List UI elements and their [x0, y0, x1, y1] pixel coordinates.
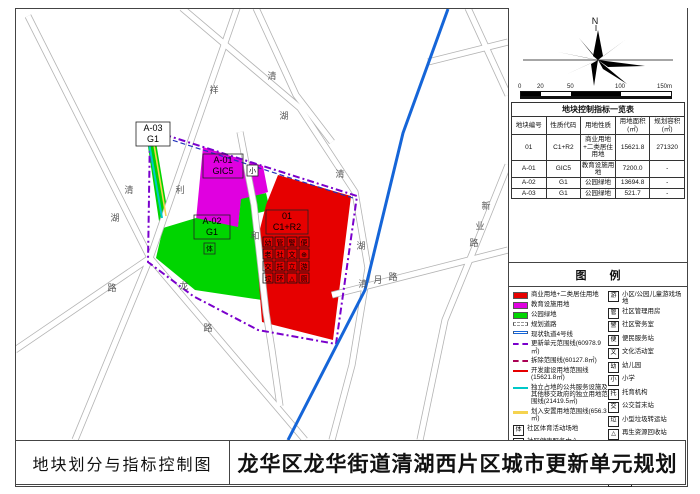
recycling-station-icon: △ [608, 429, 619, 440]
road-label: 清 [358, 278, 367, 289]
cell: 01 [512, 135, 547, 160]
development-line-symbol [513, 370, 528, 372]
road-label: 路 [203, 322, 212, 333]
cell: 521.7 [615, 188, 650, 198]
legend-item: △再生资源回收站 [608, 429, 685, 440]
scale-tick: 20 [537, 84, 544, 90]
indicator-table: 地块控制指标一览表 地块编号 性质代码 用地性质 用地面积(㎡) 规划容积(㎡)… [511, 102, 685, 199]
resettlement-line-symbol [513, 411, 528, 414]
road-label: 路 [469, 237, 478, 248]
col-capacity: 规划容积(㎡) [650, 117, 685, 135]
info-panel: N 0 20 50 100 150m 地块控制指标一览表 [508, 8, 687, 440]
col-code: 性质代码 [546, 117, 581, 135]
legend-item: 教育设施用地 [513, 301, 608, 309]
cell: 公园绿地 [581, 188, 616, 198]
legend-item: 幼幼儿园 [608, 362, 685, 373]
independent-land-symbol [513, 387, 528, 389]
police-room-icon: 警 [289, 238, 296, 247]
plot-01-code: C1+R2 [273, 222, 301, 232]
scale-bar-strip [520, 91, 672, 99]
road-label: 湖 [279, 111, 288, 121]
legend-item: 公园绿地 [513, 311, 608, 319]
road-label: 清 [124, 184, 133, 195]
road-label: 新 [481, 200, 490, 211]
road-label: 利 [175, 184, 184, 195]
cell: GIC5 [546, 160, 581, 178]
scale-tick: 150m [657, 84, 672, 90]
legend-item: 现状轨道4号线 [513, 331, 608, 338]
kindergarten-icon: 幼 [265, 238, 272, 247]
metro-line-symbol [513, 331, 528, 334]
compass-rose-icon [558, 30, 645, 86]
plot-a03-id: A-03 [143, 123, 162, 133]
road-label: 业 [475, 221, 484, 231]
road-label: 湖 [110, 213, 119, 223]
cell: 13694.8 [615, 178, 650, 188]
road-label: 月 [373, 275, 382, 285]
col-land-use: 用地性质 [581, 117, 616, 135]
nursery-icon: 托 [277, 262, 284, 271]
cell: 15621.8 [615, 135, 650, 160]
legend-item: 划入安置用地范围线(656.3㎡) [513, 408, 608, 422]
garbage-transfer-icon: 垃 [608, 416, 619, 427]
convenience-station-icon: 便 [608, 335, 619, 346]
legend-title: 图 例 [509, 263, 687, 287]
legend-item: 更新单元范围线(60978.9㎡) [513, 340, 608, 354]
demolition-line-symbol [513, 360, 528, 362]
plot-a02-id: A-02 [202, 216, 221, 226]
park-swatch [513, 312, 528, 319]
plot-01-id: 01 [282, 211, 292, 221]
commercial-swatch [513, 292, 528, 299]
plot-a01-code: GIC5 [212, 166, 233, 176]
planned-road-symbol [513, 322, 528, 326]
road-label: 路 [388, 271, 397, 282]
scale-tick: 50 [567, 84, 574, 90]
cell: 商业用地+二类居住用地 [581, 135, 616, 160]
legend-item: 体社区体育活动场地 [513, 425, 608, 436]
col-area: 用地面积(㎡) [615, 117, 650, 135]
public-toilet-icon: 厕 [301, 275, 308, 283]
cell: A-03 [512, 188, 547, 198]
sports-ground-icon: 体 [513, 425, 524, 436]
table-row: 01C1+R2 商业用地+二类居住用地15621.8 271320 [512, 135, 685, 160]
legend-item: 商业用地+二类居住用地 [513, 291, 608, 299]
bus-terminus-icon: 交 [608, 402, 619, 413]
table-row: A-02G1 公园绿地13694.8 - [512, 178, 685, 188]
legend-item: 规划道路 [513, 321, 608, 328]
cell: - [650, 188, 685, 198]
misc-facility-icon: 立 [289, 262, 296, 271]
legend-item: 小小学 [608, 375, 685, 386]
sports-ground-icon: 体 [206, 244, 213, 253]
children-playground-icon: 游 [608, 291, 619, 302]
primary-school-icon: 小 [249, 166, 256, 175]
table-row: A-03G1 公园绿地521.7 - [512, 188, 685, 198]
convenience-station-icon: 便 [301, 238, 308, 247]
col-plot-id: 地块编号 [512, 117, 547, 135]
cell: - [650, 178, 685, 188]
cell: A-01 [512, 160, 547, 178]
scale-bar: 0 20 50 100 150m [517, 84, 679, 100]
table-header-row: 地块编号 性质代码 用地性质 用地面积(㎡) 规划容积(㎡) [512, 117, 685, 135]
nursery-icon: 托 [608, 389, 619, 400]
cell: 公园绿地 [581, 178, 616, 188]
plot-a01-id: A-01 [213, 155, 232, 165]
plot-a03-code: G1 [147, 134, 159, 144]
table-title: 地块控制指标一览表 [512, 103, 685, 117]
legend-item: 托托育机构 [608, 389, 685, 400]
cell: 7200.0 [615, 160, 650, 178]
table-row: A-01GIC5 教育设施用地7200.0 - [512, 160, 685, 178]
culture-room-icon: 文 [289, 250, 296, 259]
legend-item: 管社区管理用房 [608, 308, 685, 319]
cell: 271320 [650, 135, 685, 160]
legend-item: 交公交首末站 [608, 402, 685, 413]
legend-item: 游小区/公园儿童游戏场地 [608, 291, 685, 305]
title-bar: 地块划分与指标控制图 龙华区龙华街道清湖西片区城市更新单元规划 [15, 440, 686, 485]
plot-a02-code: G1 [206, 227, 218, 237]
cell: G1 [546, 178, 581, 188]
legend-item: 开发建设用地范围线(15621.8㎡) [513, 367, 608, 381]
legend-item: 拆除范围线(60127.8㎡) [513, 357, 608, 364]
drawing-name: 地块划分与指标控制图 [16, 441, 230, 484]
health-center-icon: ⊕ [301, 252, 307, 259]
north-arrow: N [513, 12, 683, 88]
legend-item: 文文化活动室 [608, 348, 685, 359]
road-label: 湖 [356, 241, 365, 251]
management-room-icon: 管 [277, 238, 284, 247]
road-label: 龙 [179, 280, 188, 291]
cell: - [650, 160, 685, 178]
road-label: 清 [335, 168, 344, 179]
bus-terminus-icon: 交 [265, 262, 272, 271]
legend-item: 警社区警务室 [608, 321, 685, 332]
scale-tick: 100 [615, 84, 625, 90]
road-label: 清 [267, 70, 276, 81]
cell: C1+R2 [546, 135, 581, 160]
scale-ticks: 0 20 50 100 150m [517, 84, 679, 91]
kindergarten-icon: 幼 [608, 362, 619, 373]
elderly-care-icon: 老 [265, 250, 272, 259]
road-label: 祥 [209, 84, 218, 95]
garbage-transfer-icon: 垃 [265, 274, 272, 283]
playground-icon: 游 [301, 262, 308, 271]
sanitation-rest-icon: 环 [277, 275, 284, 283]
legend-item: 垃小型垃圾转运站 [608, 416, 685, 427]
education-swatch [513, 302, 528, 309]
project-title: 龙华区龙华街道清湖西片区城市更新单元规划 [230, 441, 685, 484]
culture-room-icon: 文 [608, 348, 619, 359]
road-label: 路 [107, 282, 116, 293]
road-label: 和 [250, 231, 259, 241]
police-room-icon: 警 [608, 321, 619, 332]
community-room-icon: 社 [277, 250, 284, 259]
cell: 教育设施用地 [581, 160, 616, 178]
cell: G1 [546, 188, 581, 198]
recycling-icon: △ [289, 276, 295, 283]
legend-item: 独立占地的公共服务设施及其他移交政府的独立用地范围线(21419.5㎡) [513, 384, 608, 406]
map-canvas: 清 湖 路 祥 利 清 湖 和 龙 路 清 湖 清 月 路 新 业 路 A-03… [16, 9, 508, 440]
management-room-icon: 管 [608, 308, 619, 319]
unit-boundary-symbol [513, 343, 528, 345]
north-letter: N [592, 16, 599, 26]
cell: A-02 [512, 178, 547, 188]
primary-school-icon: 小 [608, 375, 619, 386]
legend-item: 便便民服务站 [608, 335, 685, 346]
scale-tick: 0 [518, 84, 521, 90]
